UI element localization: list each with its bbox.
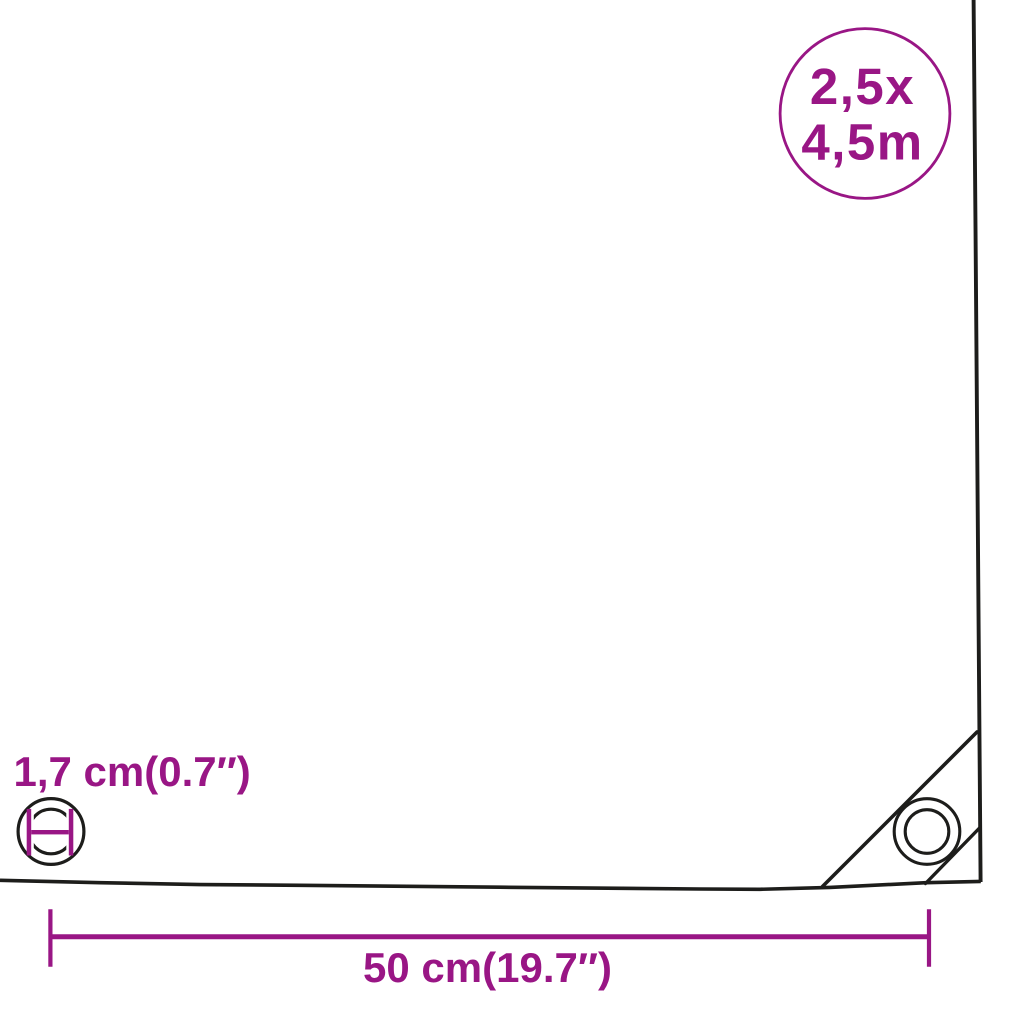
svg-text:50 cm(19.7″): 50 cm(19.7″): [363, 944, 612, 991]
svg-text:2,5x: 2,5x: [810, 58, 915, 115]
svg-text:1,7 cm(0.7″): 1,7 cm(0.7″): [14, 748, 251, 795]
svg-text:4,5m: 4,5m: [801, 114, 923, 171]
